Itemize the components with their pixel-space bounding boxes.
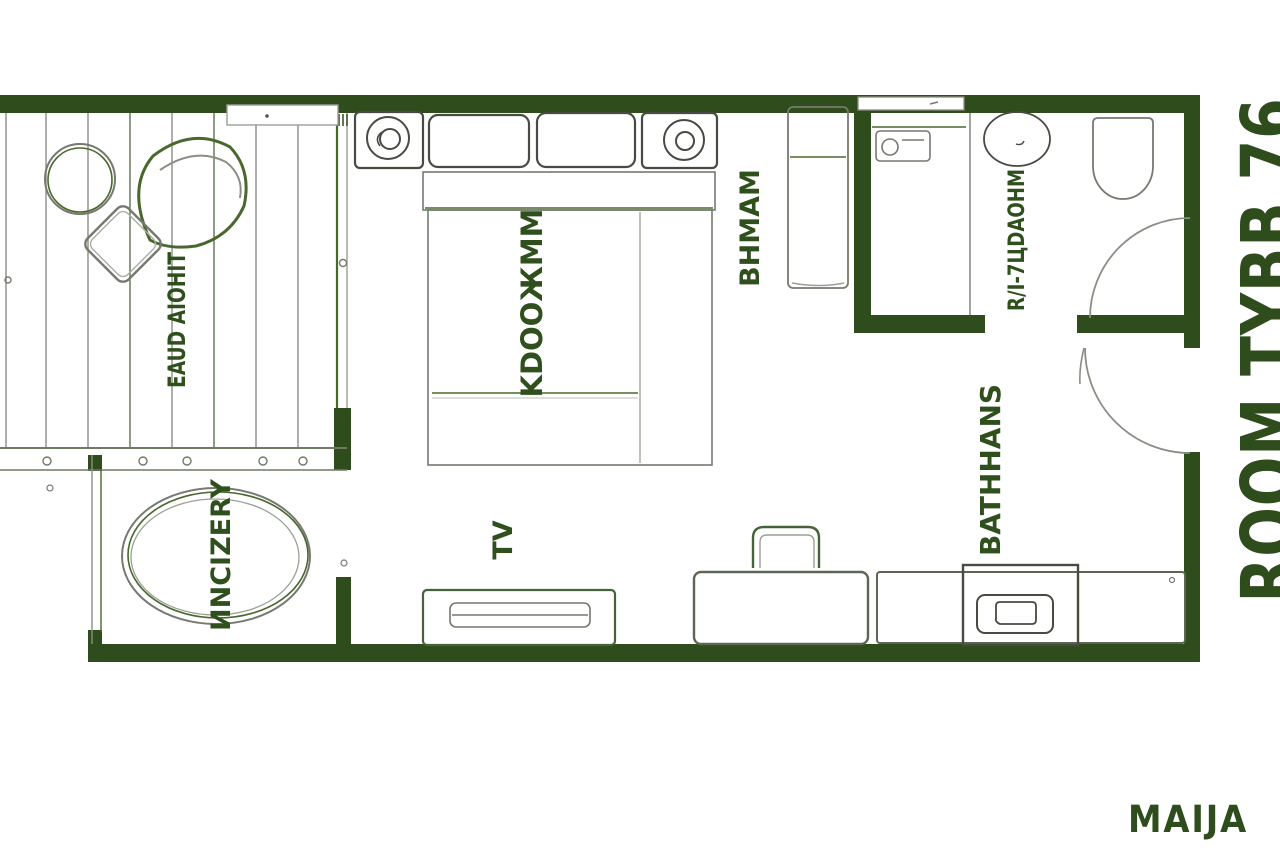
shower-fixture [876,131,930,161]
wall-bathroom-bottom-right [1077,315,1196,333]
living-area [423,527,1185,645]
pillow-right [537,113,635,167]
entrance-door [1080,348,1190,453]
wall-bathroom-bottom-left [854,315,985,333]
wardrobe-label: BHMAM [735,169,766,287]
floor-plan-page: EAUD AIOHIT ИNCIZERY [0,0,1280,854]
room-type-title: ROOM TYBB 76 [1226,97,1280,602]
bed [423,172,715,465]
washbasin [984,112,1050,166]
counter-end-mark [1170,578,1175,583]
bathroom-window [858,97,964,110]
counter-sink [963,565,1078,645]
balcony-window-wall [337,113,347,408]
wardrobe [788,107,848,288]
floor-plan-drawing: EAUD AIOHIT ИNCIZERY [0,0,1280,854]
balcony-step [227,105,338,125]
desk-chair [753,527,819,568]
wall-pier-balcony-jacuzzi [334,408,351,470]
bed-label: KDOOЖMM [515,208,549,397]
balcony-label: EAUD AIOHIT [163,252,191,388]
balcony-step-knob [265,114,269,118]
bathroom [872,112,1190,318]
entrance-door-leaf [1080,348,1084,384]
wall-top [0,95,1198,113]
balcony-lounge-chair [139,138,246,247]
wall-bathroom-left [854,95,871,333]
bathroom-label: R/I-7ЦDAOHM [1005,169,1030,311]
wall-jacuzzi-right-lower [336,577,351,644]
bed-mattress [428,210,712,465]
wall-jacuzzi-left-bottom-pier [88,630,102,644]
pillow-left [429,115,529,167]
bathroom-door-arc [1090,218,1190,318]
wall-right-lower [1184,452,1200,662]
wall-bottom [88,644,1196,662]
nightstand-right [642,113,717,168]
hall-label: BATHHANS [974,384,1007,556]
toilet [1093,118,1153,199]
wall-right-upper [1184,95,1200,348]
tv-label: TV [488,520,519,559]
brand-logo: MAIJA [1128,798,1248,841]
nightstand-left [355,112,423,168]
balcony-side-table [82,203,164,285]
entrance-door-arc [1085,348,1190,453]
wall-jacuzzi-left-top-pier [88,455,102,471]
bench-desk [694,572,868,644]
balcony-round-table [45,144,115,214]
jacuzzi-room [47,455,347,644]
bedroom [355,107,848,465]
balcony-bottom-track [0,448,347,470]
bed-headboard [423,172,715,210]
tv-console [423,590,615,645]
jacuzzi-label: ИNCIZERY [206,479,237,631]
